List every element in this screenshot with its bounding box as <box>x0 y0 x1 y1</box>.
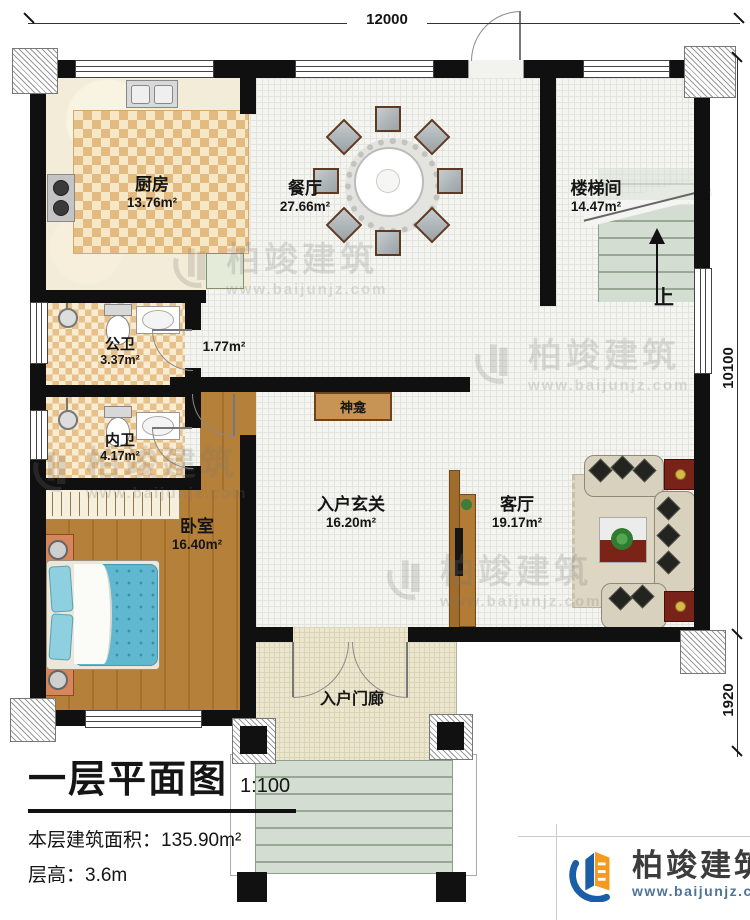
porch-step-pier-right <box>436 872 466 902</box>
dining-label: 餐厅 <box>288 180 322 197</box>
kitchen-sink-icon <box>126 80 178 108</box>
dim-top-value: 12000 <box>347 10 427 28</box>
shower-head-icon <box>58 410 78 430</box>
brand-name: 柏竣建筑 <box>632 849 750 883</box>
dining-window <box>295 60 434 78</box>
inner-bath-door-leaf <box>152 427 192 429</box>
public-bath-door-leaf <box>152 329 192 331</box>
public-bath-label: 公卫 <box>105 337 135 352</box>
bedroom-area: 16.40m² <box>172 538 222 552</box>
foyer-label: 入户玄关 <box>317 496 385 513</box>
inner-bath-area: 4.17m² <box>100 450 140 463</box>
tv-icon <box>455 528 463 576</box>
back-door-swing <box>471 11 521 61</box>
dim-right-upper-value: 10100 <box>718 328 738 408</box>
frame-line-h <box>518 836 750 837</box>
floor-height-label: 层高： <box>28 865 85 886</box>
bedroom-window <box>85 710 202 728</box>
bedroom-label: 卧室 <box>180 518 214 535</box>
plant-icon <box>611 528 633 550</box>
burner-bottom <box>53 200 69 216</box>
dining-chair <box>375 106 401 132</box>
basin-bowl <box>142 310 174 330</box>
foyer-area: 16.20m² <box>326 516 376 530</box>
floor-area-value: 135.90m² <box>161 830 241 851</box>
kitchen-window <box>75 60 214 78</box>
wall-bedroom-top <box>30 478 200 490</box>
living-area: 19.17m² <box>492 516 542 530</box>
entry-back-door-threshold <box>468 60 524 78</box>
brand-website: www.baijunjz.com <box>632 883 750 899</box>
front-door-right-leaf <box>406 642 408 697</box>
wall-porch-left <box>253 627 293 642</box>
brand-logo: 柏竣建筑 www.baijunjz.com <box>566 846 750 902</box>
living-label: 客厅 <box>500 496 534 513</box>
wall-bedroom-right <box>240 435 256 726</box>
wall-kitchen-dining-stub <box>240 78 256 114</box>
plant-icon <box>461 499 472 510</box>
stair-up-label: 上 <box>654 288 674 308</box>
stairwell-label: 楼梯间 <box>571 180 622 197</box>
shrine-label: 神龛 <box>340 397 366 416</box>
corner-table-icon <box>664 459 696 490</box>
wall-left <box>30 60 46 726</box>
shrine-cabinet: 神龛 <box>314 392 392 421</box>
dim-tick <box>733 12 744 23</box>
lamp-icon <box>48 670 68 690</box>
corner-table-icon <box>664 591 696 622</box>
sofa-chaise-icon <box>601 583 667 629</box>
stove-icon <box>47 174 75 222</box>
bed-pillow <box>48 613 73 660</box>
page-title: 一层平面图 <box>28 748 228 803</box>
dining-chair <box>375 230 401 256</box>
burner-top <box>53 180 69 196</box>
kitchen-area: 13.76m² <box>127 196 177 210</box>
floor-height-value: 3.6m <box>85 865 127 886</box>
public-bath-window <box>30 302 48 364</box>
dim-right-lower-value: 1920 <box>718 665 738 735</box>
sink-bowl-left <box>131 85 150 104</box>
wardrobe-icon <box>40 488 180 520</box>
wall-bath-right-a <box>185 303 201 330</box>
inner-bath-window <box>30 410 48 460</box>
floor-area-label: 本层建筑面积： <box>28 830 161 851</box>
corridor-doorway-floor <box>240 392 256 438</box>
porch-rail-right <box>451 754 477 876</box>
stair-up-arrow <box>649 228 665 244</box>
sink-bowl-right <box>154 85 173 104</box>
dim-tick <box>23 12 34 23</box>
back-door-leaf <box>519 11 521 60</box>
bed-sheet-fold <box>74 564 112 664</box>
stairwell-area: 14.47m² <box>571 200 621 214</box>
front-door-left-leaf <box>292 642 294 697</box>
wardrobe-hangers <box>44 492 176 516</box>
hall-window <box>694 268 712 374</box>
wall-stairwell-left <box>540 78 556 306</box>
wall-living-bottom <box>408 627 710 642</box>
shower-head-icon <box>58 308 78 328</box>
pier-top-left <box>12 48 58 94</box>
bedroom-corridor-door-leaf <box>233 394 235 436</box>
title-rule <box>28 809 296 813</box>
dining-area: 27.66m² <box>280 200 330 214</box>
wall-kitchen-bottom <box>30 290 206 303</box>
lamp-icon <box>48 540 68 560</box>
title-block: 一层平面图 1:100 本层建筑面积：135.90m² 层高：3.6m <box>28 748 338 887</box>
dining-chair <box>437 168 463 194</box>
porch-label: 入户门廊 <box>320 692 384 708</box>
dining-table-center <box>376 169 400 193</box>
kitchen-label: 厨房 <box>135 176 169 193</box>
fridge-icon <box>206 253 244 289</box>
plan-scale: 1:100 <box>240 775 290 798</box>
public-bath-area: 3.37m² <box>100 354 140 367</box>
stairwell-window <box>583 60 670 78</box>
pier-bottom-left <box>10 698 56 742</box>
pier-top-right <box>684 46 736 98</box>
niche-area: 1.77m² <box>203 340 246 354</box>
frame-line-v <box>556 824 557 920</box>
inner-bath-label: 内卫 <box>105 433 135 448</box>
wall-foyer-top <box>170 377 470 392</box>
wall-bath-divider <box>46 385 185 397</box>
brand-logo-icon <box>566 846 624 902</box>
porch-column-right <box>429 714 473 760</box>
bed-pillow <box>48 565 73 612</box>
floor-plan-canvas: 上 <box>0 0 750 920</box>
